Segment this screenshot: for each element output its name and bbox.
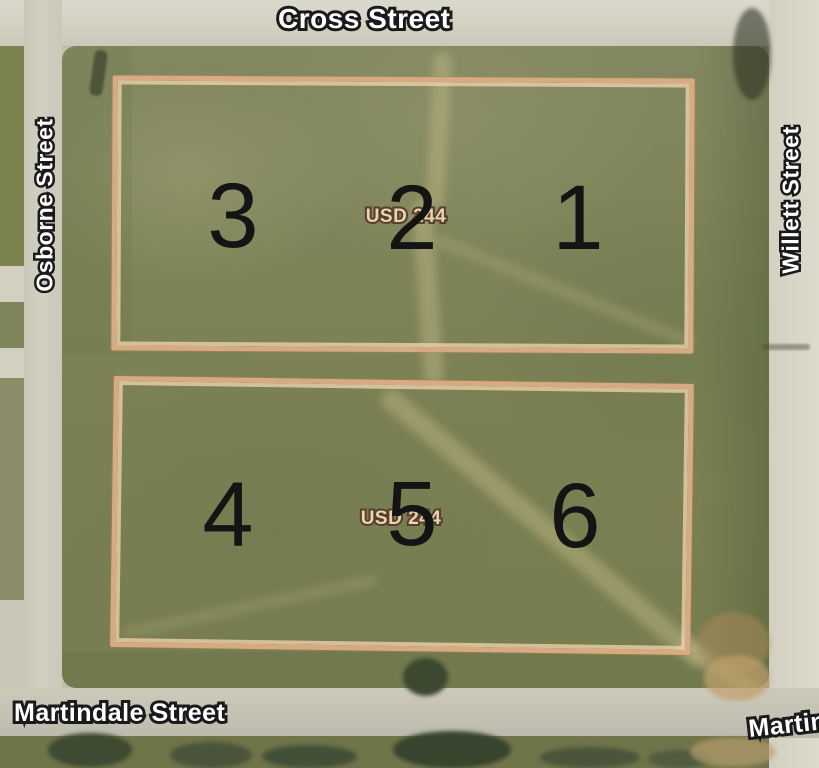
west-parcel	[0, 302, 24, 348]
street-label-cross: Cross Street	[278, 3, 451, 35]
tree	[48, 733, 132, 767]
west-parcel	[0, 46, 24, 266]
tree	[262, 745, 357, 768]
street-label-martindale: Martindale Street	[14, 699, 225, 728]
street-label-osborne: Osborne Street	[32, 118, 59, 291]
lot-number-5: 5	[347, 459, 477, 569]
driveway	[0, 348, 24, 378]
lot-number-4: 4	[163, 460, 293, 570]
aerial-lot-map: USD 244 USD 244 3 2 1 4 5 6 Cross Street…	[0, 0, 819, 768]
field-shading	[62, 652, 702, 688]
driveway-mark	[762, 344, 810, 350]
dirt-rubble-patch	[704, 655, 770, 701]
tree	[403, 658, 448, 696]
lot-number-2: 2	[347, 163, 477, 273]
lot-number-1: 1	[513, 163, 643, 273]
field-shading	[700, 46, 769, 688]
west-parcel	[0, 378, 24, 600]
lot-number-6: 6	[510, 461, 640, 571]
driveway	[0, 266, 24, 302]
lot-number-3: 3	[168, 161, 298, 271]
tree	[170, 742, 252, 768]
tree	[540, 747, 640, 768]
west-paved-area	[0, 600, 24, 688]
road-osborne-street	[24, 0, 62, 768]
road-willett-street	[769, 0, 819, 768]
street-label-willett: Willett Street	[778, 126, 805, 273]
tree	[733, 8, 771, 100]
tree	[393, 731, 511, 768]
